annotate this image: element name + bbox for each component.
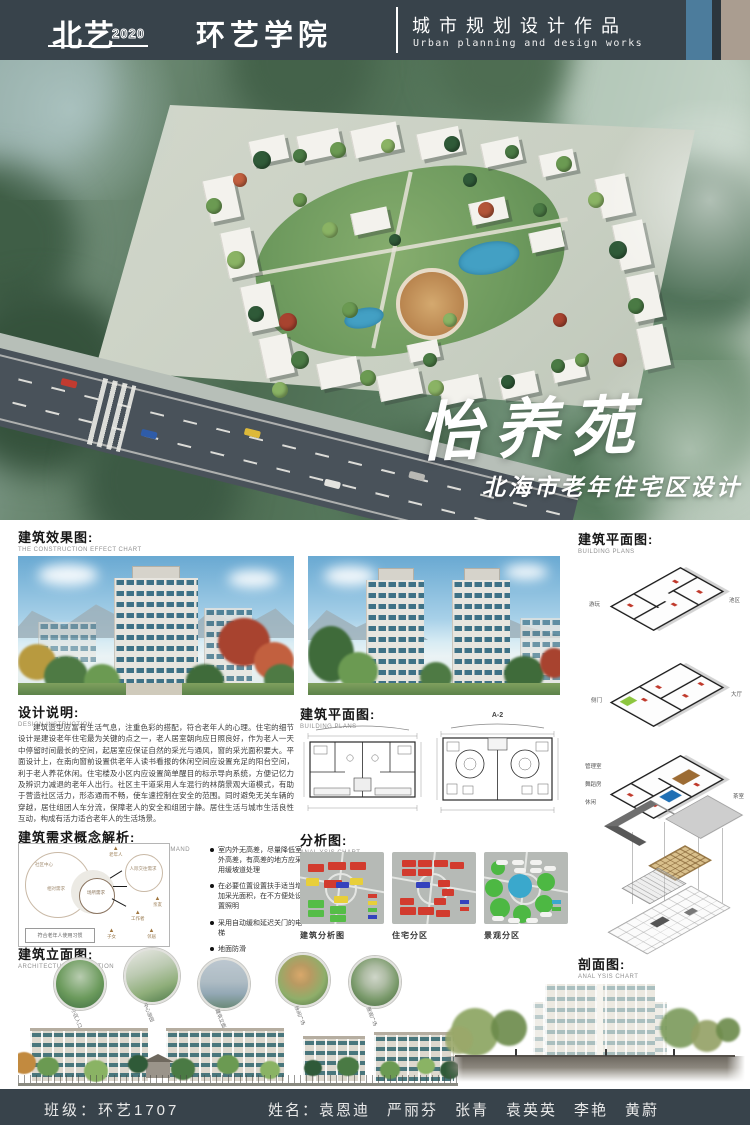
central-plaza (396, 268, 468, 340)
zone-block (334, 896, 348, 903)
plan-a2-label: A-2 (435, 712, 560, 719)
legend-swatch (368, 908, 377, 912)
demand-bullet-list: 室内外无高差，尽量降低室外高差，有高差的地方应采用缓坡道处理 在必要位置设置扶手… (210, 846, 306, 962)
brand-underline (48, 45, 148, 47)
section-drawing (445, 972, 745, 1084)
render-ground (308, 683, 560, 695)
twin-tower-right (452, 580, 510, 688)
cloud (228, 570, 278, 588)
ground-line (18, 1083, 458, 1086)
bullet-text: 在必要位置设置扶手适当增加采光面积，在不方便处设置照明 (218, 882, 306, 911)
forest-blob (435, 60, 565, 125)
bullet-text: 采用自动缓和延迟关门的电梯 (218, 919, 306, 939)
elevation-tree (304, 1060, 322, 1076)
white-building (530, 868, 542, 873)
design-description: 建筑造型应富有生活气息，注重色彩的搭配，符合老年人的心理。住宅的细节设计是建设老… (18, 722, 294, 825)
white-building (544, 866, 556, 871)
legend-swatch (552, 900, 561, 904)
tree (342, 302, 358, 318)
bubble-right-label: 人际交往需求 (127, 866, 159, 871)
white-building (512, 860, 524, 865)
bullet-item: 地面防滑 (210, 945, 306, 955)
actor-label: 邻居 (147, 934, 156, 939)
section-title: 建筑效果图: (18, 527, 142, 546)
class-info: 班级：环艺1707 (44, 1099, 179, 1120)
door-mark (696, 590, 703, 594)
tree (443, 313, 457, 327)
room-label: 管理室 (585, 762, 602, 770)
fog-overlay (600, 100, 750, 300)
zone-block (416, 882, 430, 888)
section-title: 设计说明: (18, 702, 93, 721)
bullet-dot (210, 947, 214, 951)
person-figure (673, 1049, 675, 1056)
header-stripe-dark (712, 0, 721, 60)
zone-block (438, 880, 450, 887)
section-subtitle: THE CONSTRUCTION EFFECT CHART (18, 547, 142, 553)
map-caption: 景观分区 (484, 930, 520, 941)
elevation-drawing (18, 1012, 458, 1086)
zone-block (434, 860, 448, 867)
tree (291, 351, 309, 369)
header-bar: 北艺 2020 环艺学院 城市规划设计作品 Urban planning and… (0, 0, 750, 60)
plan-a1-label: A-1 (300, 714, 425, 721)
axon-plan-box (610, 663, 725, 727)
door-mark (693, 783, 700, 787)
map-caption: 住宅分区 (392, 930, 428, 941)
bubble-center-circle (79, 878, 115, 914)
cloud (504, 564, 548, 580)
actor: ▲邻居 (147, 928, 156, 940)
elevation-tree (128, 1055, 148, 1073)
bullet-dot (210, 848, 214, 852)
base-plan (607, 886, 730, 955)
section-tree (445, 1026, 473, 1054)
white-building (514, 868, 526, 873)
exploded-axon-diagram (602, 792, 748, 952)
department-title: 环艺学院 (196, 12, 332, 54)
elevation-tree (37, 1057, 59, 1077)
category-title-en: Urban planning and design works (413, 38, 643, 49)
zone-block (328, 862, 346, 870)
tree (360, 370, 376, 386)
red-tree (233, 173, 247, 187)
zone-block (450, 862, 464, 869)
tree (253, 151, 271, 169)
legend-swatch (552, 907, 561, 911)
zone-block (402, 869, 416, 876)
building-gap (597, 984, 603, 1058)
tree (463, 173, 477, 187)
zone-block (350, 878, 363, 885)
elevation-inset-3 (198, 958, 250, 1010)
section-tree (716, 1018, 740, 1042)
project-subtitle: 北海市老年住宅区设计 (430, 468, 742, 502)
red-tree (478, 202, 494, 218)
zone-block (400, 898, 414, 905)
red-tree (279, 313, 297, 331)
wall (672, 590, 699, 605)
zone-block (330, 906, 346, 914)
door-mark (697, 682, 704, 686)
tree (423, 353, 437, 367)
room-label: 舞蹈房 (585, 780, 602, 788)
floor-plan-a1 (300, 722, 425, 822)
connector-line (112, 898, 127, 906)
elevation-inset-2 (124, 948, 180, 1004)
white-building (492, 916, 504, 921)
car (60, 378, 77, 389)
ground-section (445, 1056, 745, 1082)
elevation-tree (217, 1055, 239, 1075)
core-block (650, 916, 670, 927)
design-poster: 北艺 2020 环艺学院 城市规划设计作品 Urban planning and… (0, 0, 750, 1125)
tree (293, 149, 307, 163)
guide-line (722, 828, 723, 904)
section-title: 剖面图: (578, 954, 638, 973)
white-building (530, 860, 542, 865)
note-box: 符合老年人使用习惯 (25, 928, 95, 943)
student-names: 姓名：袁恩迪 严丽芬 张青 袁英英 李艳 黄蔚 (268, 1099, 659, 1120)
effect-render-1 (18, 556, 294, 695)
project-title: 怡养苑 (416, 374, 647, 474)
axon-plan-2: 侧门 大厅 (585, 650, 745, 744)
tree (272, 382, 288, 398)
actor: ▲工作者 (131, 910, 145, 922)
tree (248, 306, 264, 322)
header-divider (396, 7, 398, 53)
walk-path (126, 683, 182, 695)
zone-block (434, 898, 446, 905)
legend-swatch (368, 915, 377, 919)
actor: ▲子女 (107, 928, 116, 940)
bubble-right-circle (125, 854, 163, 892)
actor-label: 亲友 (153, 902, 162, 907)
door-mark (641, 698, 648, 702)
zone-block (308, 900, 324, 908)
aerial-render: 怡养苑 北海市老年住宅区设计 (0, 60, 750, 520)
room-label: 大厅 (731, 690, 742, 698)
bubble-label: 社区中心 (35, 862, 53, 867)
tree (322, 222, 338, 238)
white-building (508, 918, 520, 923)
tree (206, 198, 222, 214)
brand-logo: 北艺 (52, 11, 116, 55)
bubble-label: 相对需求 (47, 886, 65, 891)
white-building (526, 918, 538, 923)
zone-block (418, 860, 432, 867)
zone-block (418, 869, 432, 876)
elevation-tree (417, 1058, 435, 1074)
door-mark (672, 580, 679, 584)
tree (389, 234, 401, 246)
legend-swatch (460, 900, 469, 904)
axon-plan-1: 游玩 池区 (585, 552, 745, 652)
haze-overlay (0, 60, 200, 200)
white-building (496, 860, 508, 865)
connector-line (113, 886, 127, 887)
white-building (540, 912, 552, 917)
zone-block (336, 882, 349, 888)
analysis-map-residential (392, 852, 476, 924)
bullet-item: 采用自动缓和延迟关门的电梯 (210, 919, 306, 939)
green-zone (485, 879, 503, 897)
green-zone (537, 873, 555, 891)
zone-block (418, 907, 434, 915)
door-mark (671, 603, 678, 607)
zone-block (350, 862, 366, 870)
tree (381, 139, 395, 153)
map-caption: 建筑分析图 (300, 930, 345, 941)
header-stripe-blue (686, 0, 712, 60)
elevation-tree (337, 1057, 359, 1077)
tree (556, 156, 572, 172)
analysis-map-building (300, 852, 384, 924)
bullet-item: 在必要位置设置扶手适当增加采光面积，在不方便处设置照明 (210, 882, 306, 911)
legend-swatch (460, 907, 469, 911)
bullet-text: 地面防滑 (218, 945, 246, 955)
zone-block (308, 864, 324, 872)
legend-swatch (368, 894, 377, 898)
category-title-cn: 城市规划设计作品 (412, 12, 628, 38)
header-stripe-tan (721, 0, 750, 60)
zone-block (330, 915, 346, 922)
tree (533, 203, 547, 217)
room-label: 游玩 (589, 600, 600, 608)
room-label: 休闲 (585, 798, 596, 806)
zone-block (400, 907, 416, 915)
tree (330, 142, 346, 158)
zone-block (402, 860, 416, 867)
zone-block (436, 910, 450, 917)
brand-year: 2020 (112, 26, 145, 41)
actor: ▲老年人 (109, 846, 123, 858)
section-tree (491, 1010, 527, 1046)
person-figure (515, 1049, 517, 1056)
elevation-inset-5 (349, 956, 401, 1008)
room-label: 侧门 (591, 696, 602, 704)
red-tree (553, 313, 567, 327)
floor-plan-a2 (435, 720, 560, 822)
crosswalk (87, 378, 136, 452)
footer-bar: 班级：环艺1707 姓名：袁恩迪 严丽芬 张青 袁英英 李艳 黄蔚 (0, 1089, 750, 1125)
section-title: 建筑平面图: (578, 529, 653, 548)
door-mark (655, 685, 662, 689)
bullet-item: 室内外无高差，尽量降低室外高差，有高差的地方应采用缓坡道处理 (210, 846, 306, 875)
car (324, 479, 341, 490)
axon-plan-box (610, 567, 725, 631)
water-zone (508, 874, 532, 898)
green-zone (490, 898, 510, 918)
fence (18, 1075, 458, 1083)
elevation-inset-4 (276, 953, 330, 1007)
actor-label: 子女 (107, 934, 116, 939)
car (140, 429, 157, 440)
zone-block (306, 878, 319, 886)
main-tower (114, 578, 198, 688)
cloud (38, 564, 98, 586)
section-effect-header: 建筑效果图: THE CONSTRUCTION EFFECT CHART (18, 527, 142, 553)
bullet-text: 室内外无高差，尽量降低室外高差，有高差的地方应采用缓坡道处理 (218, 846, 306, 875)
bullet-dot (210, 884, 214, 888)
bubble-center-label: 场所需求 (82, 890, 110, 895)
green-room (620, 696, 638, 706)
person-figure (605, 1049, 607, 1056)
door-mark (682, 694, 689, 698)
zone-block (442, 889, 454, 896)
wall (659, 676, 701, 700)
effect-render-2 (308, 556, 560, 695)
tree (628, 298, 644, 314)
room-label: 池区 (729, 596, 740, 604)
legend-swatch (368, 901, 377, 905)
ground-top-line (455, 1055, 735, 1057)
zone-block (308, 910, 324, 917)
tree (505, 145, 519, 159)
bullet-dot (210, 921, 214, 925)
section-title: 分析图: (300, 830, 360, 849)
note-text: 符合老年人使用习惯 (26, 932, 94, 939)
actor-label: 工作者 (131, 916, 145, 921)
actor: ▲亲友 (153, 896, 162, 908)
tree (444, 136, 460, 152)
actor-label: 老年人 (109, 852, 123, 857)
elevation-inset-1 (54, 958, 106, 1010)
tree (227, 251, 245, 269)
connector-line (110, 870, 122, 878)
core-block (684, 908, 698, 916)
tree (293, 193, 307, 207)
door-mark (627, 603, 634, 607)
roof-panel (665, 795, 743, 838)
demand-bubble-diagram: 社区中心 相对需求 场所需求 人际交往需求 ▲老年人 ▲亲友 ▲工作者 ▲子女 … (18, 843, 170, 947)
analysis-map-landscape (484, 852, 568, 924)
green-zone (535, 895, 553, 913)
